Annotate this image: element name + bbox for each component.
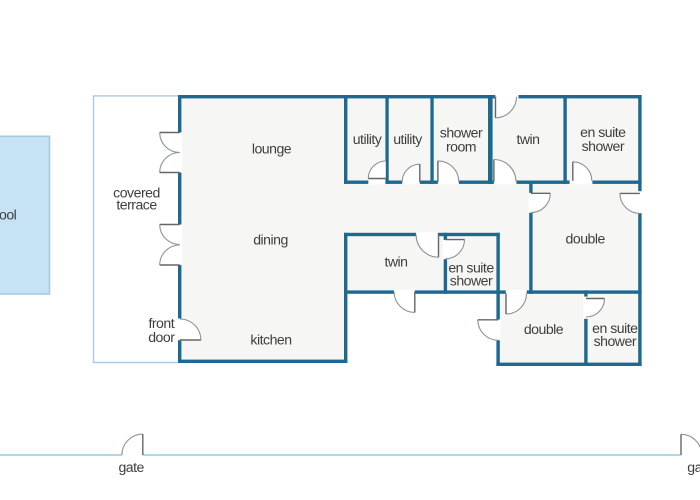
svg-text:double: double: [524, 321, 564, 337]
svg-text:shower: shower: [594, 333, 637, 349]
svg-text:room: room: [446, 139, 476, 155]
svg-text:dining: dining: [253, 231, 288, 247]
svg-text:pool: pool: [0, 207, 17, 223]
svg-text:utility: utility: [393, 131, 423, 147]
svg-text:lounge: lounge: [252, 140, 292, 156]
svg-text:utility: utility: [353, 131, 383, 147]
svg-text:door: door: [148, 329, 175, 345]
svg-text:gate: gate: [118, 459, 144, 475]
svg-text:gate: gate: [687, 459, 700, 475]
svg-text:twin: twin: [516, 131, 539, 147]
svg-text:kitchen: kitchen: [250, 332, 291, 348]
svg-text:double: double: [566, 230, 606, 246]
svg-text:terrace: terrace: [116, 197, 157, 213]
svg-text:shower: shower: [582, 138, 625, 154]
svg-text:twin: twin: [384, 254, 407, 270]
svg-text:shower: shower: [450, 273, 493, 289]
